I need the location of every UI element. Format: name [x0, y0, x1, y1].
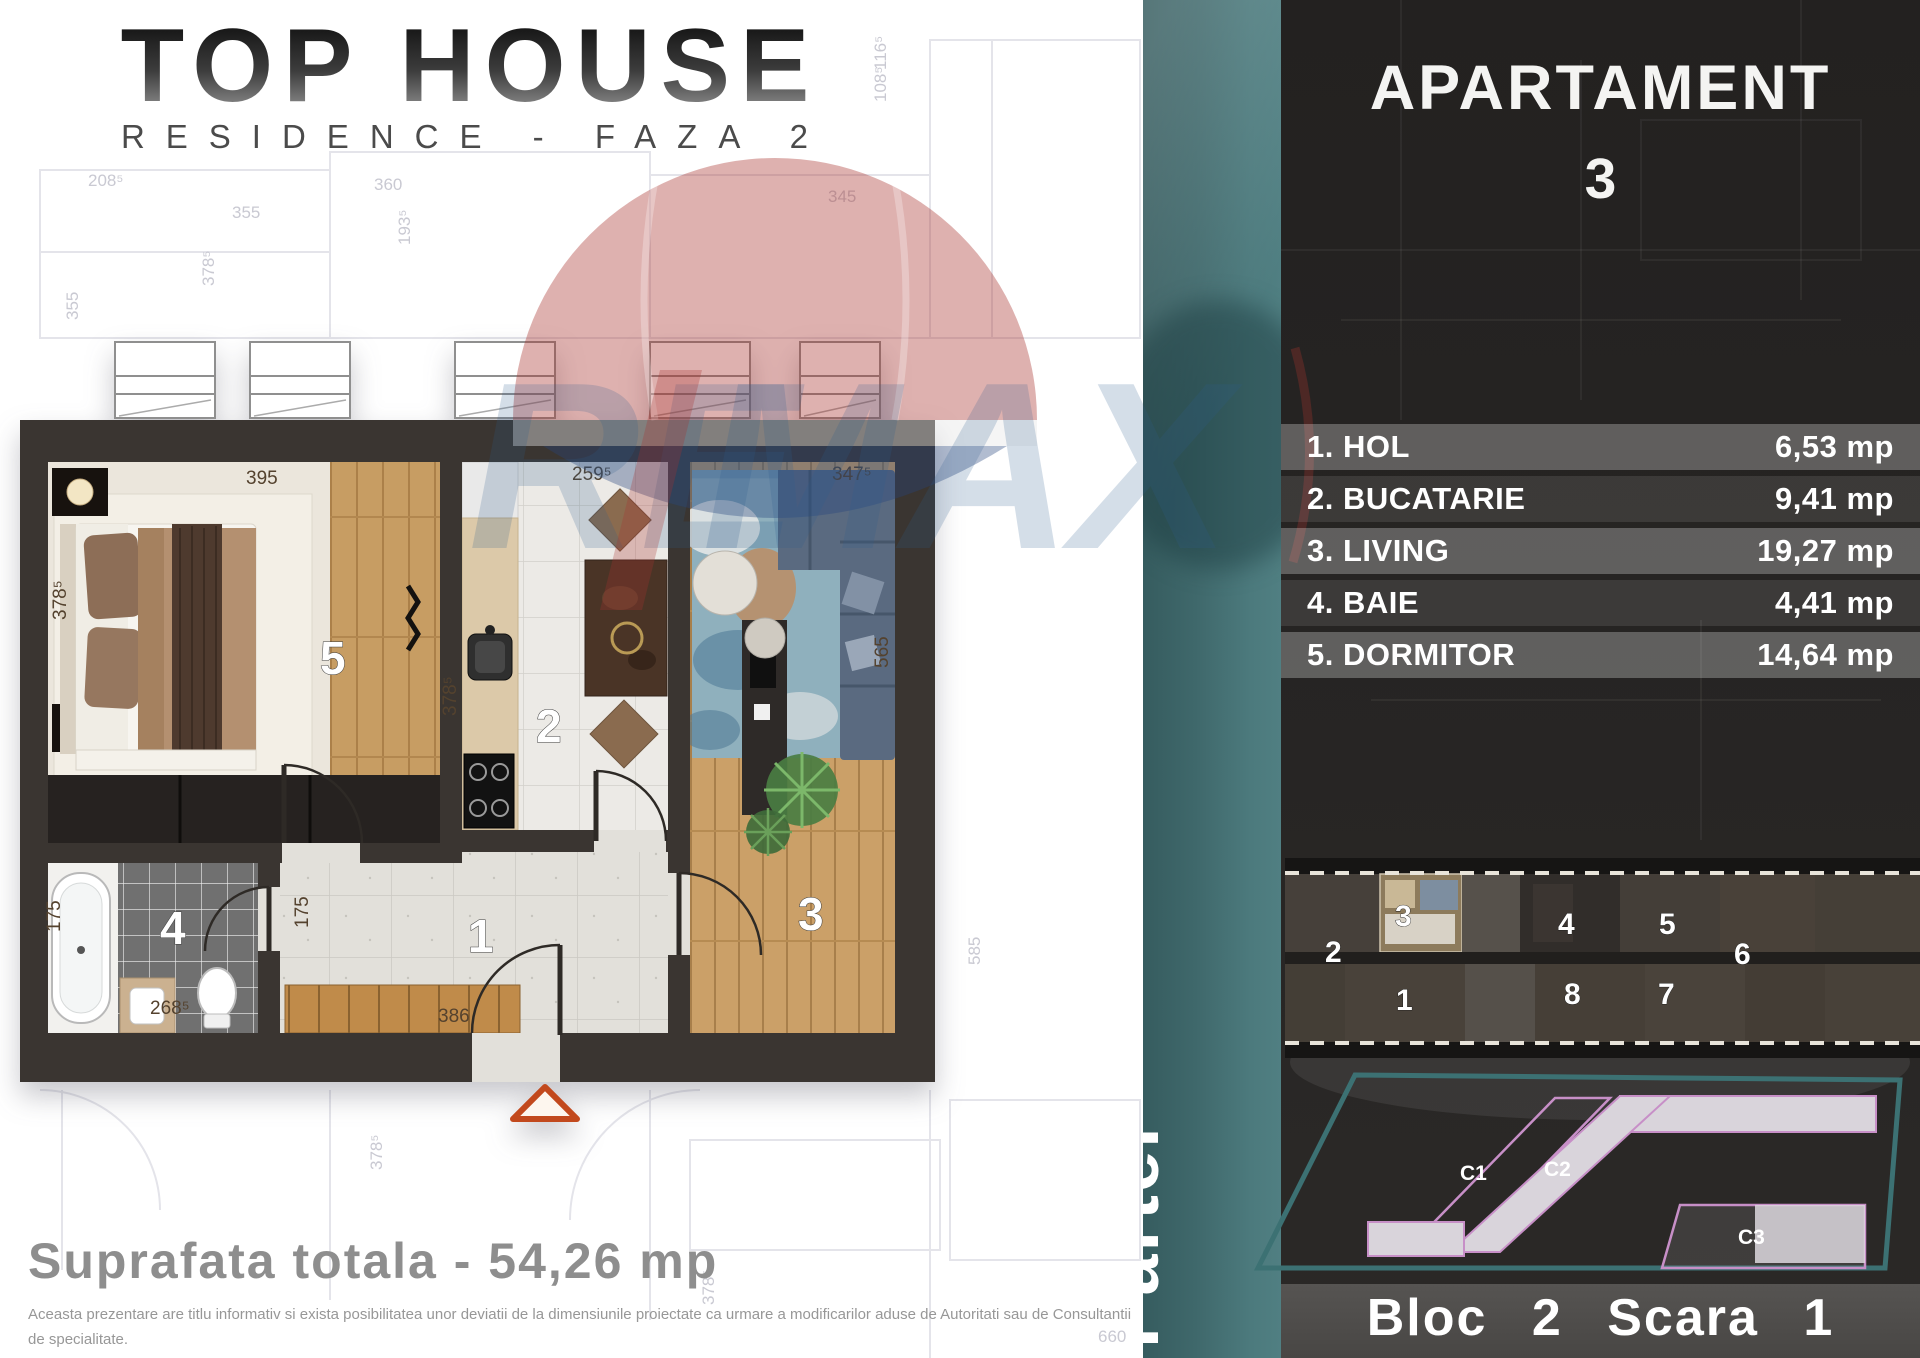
overview-unit-1: 1 [1396, 984, 1413, 1017]
overview-unit-5: 5 [1659, 908, 1676, 941]
dim-label: 268⁵ [150, 998, 190, 1019]
room-row-living: 3. LIVING 19,27 mp [1281, 528, 1920, 574]
dim-label: 175 [44, 900, 65, 932]
coffee-table [693, 551, 757, 615]
stove [464, 754, 514, 828]
dim-label: 175 [292, 896, 313, 928]
room-name: 5. DORMITOR [1307, 637, 1515, 673]
logo: TOP HOUSE RESIDENCE - FAZA 2 [70, 14, 870, 156]
backdrop-dim: 360 [374, 175, 402, 194]
disclaimer: Aceasta prezentare are titlu informativ … [28, 1303, 1140, 1358]
entrance-marker-icon [513, 1087, 577, 1119]
total-area-label: Suprafata totala - 54,26 mp [28, 1232, 718, 1290]
room-area: 14,64 mp [1757, 637, 1894, 673]
room-area: 9,41 mp [1775, 481, 1894, 517]
room-name: 3. LIVING [1307, 533, 1449, 569]
backdrop-dim: 378⁵ [199, 251, 218, 286]
room-number-kitchen: 2 [536, 700, 562, 752]
block-stair-label: Bloc 2 Scara 1 [1281, 1288, 1920, 1348]
room-number-living: 3 [798, 888, 824, 940]
room-name: 2. BUCATARIE [1307, 481, 1525, 517]
room-number-bedroom: 5 [320, 632, 346, 684]
room-row-hol: 1. HOL 6,53 mp [1281, 424, 1920, 470]
dim-label: 386 [438, 1006, 470, 1027]
overview-unit-4: 4 [1558, 908, 1575, 941]
logo-title: TOP HOUSE [70, 14, 870, 118]
room-row-dormitor: 5. DORMITOR 14,64 mp [1281, 632, 1920, 678]
toilet [198, 968, 236, 1028]
room-number-bath: 4 [160, 902, 186, 954]
disclaimer-line1: Aceasta prezentare are titlu informativ … [28, 1303, 1140, 1353]
site-plan: C1 C2 C3 [1248, 1060, 1920, 1290]
room-name: 1. HOL [1307, 429, 1410, 465]
overview-unit-3: 3 [1395, 900, 1412, 933]
room-number-hall: 1 [468, 910, 494, 962]
building-c3-label: C3 [1738, 1226, 1765, 1249]
building-c2-label: C2 [1544, 1158, 1571, 1181]
room-area: 6,53 mp [1775, 429, 1894, 465]
floor-plan: 395 259⁵ 347⁵ 378⁵ 378⁵ 175 175 268⁵ 386… [20, 338, 935, 1138]
window [115, 342, 880, 418]
room-area-list: 1. HOL 6,53 mp 2. BUCATARIE 9,41 mp 3. L… [1281, 424, 1920, 684]
overview-unit-6: 6 [1734, 938, 1751, 971]
apartment-title: APARTAMENT [1281, 52, 1920, 124]
overview-units [1285, 873, 1920, 1043]
floor-level-label: Parter [1143, 1116, 1175, 1348]
room-row-bucatarie: 2. BUCATARIE 9,41 mp [1281, 476, 1920, 522]
hall-sideboard [285, 985, 520, 1033]
backdrop-dim: 208⁵ [88, 171, 123, 190]
room-name: 4. BAIE [1307, 585, 1419, 621]
room-area: 4,41 mp [1775, 585, 1894, 621]
dim-label: 378⁵ [50, 580, 71, 620]
overview-unit-8: 8 [1564, 978, 1581, 1011]
backdrop-dim: 355 [63, 292, 82, 320]
fridge [462, 462, 518, 518]
backdrop-dim: 585 [965, 937, 984, 965]
dim-label: 259⁵ [572, 464, 612, 485]
room-area: 19,27 mp [1757, 533, 1894, 569]
backdrop-dim: 108⁵ [871, 67, 890, 102]
wardrobe [48, 775, 440, 843]
floor-overview: 2 3 4 5 6 1 8 7 [1285, 858, 1920, 1058]
disclaimer-line2: Echipamentele si mobilierul care apar in… [28, 1353, 1140, 1358]
backdrop-dim: 345 [828, 187, 856, 206]
dim-label: 378⁵ [440, 676, 461, 716]
dim-label: 395 [246, 468, 278, 489]
backdrop-dim: 193⁵ [395, 210, 414, 245]
dim-label: 347⁵ [832, 464, 872, 485]
room-row-baie: 4. BAIE 4,41 mp [1281, 580, 1920, 626]
poster: 208⁵ 355 360 345 193⁵ 378⁵ 355 116⁵ 108⁵… [0, 0, 1920, 1358]
backdrop-dim: 116⁵ [871, 36, 890, 70]
strip-balloon-shadow [1143, 300, 1281, 570]
logo-subtitle: RESIDENCE - FAZA 2 [70, 118, 870, 156]
building-c1-label: C1 [1460, 1162, 1487, 1185]
apartment-number: 3 [1281, 146, 1920, 212]
side-table [745, 618, 785, 658]
overview-unit-7: 7 [1658, 978, 1675, 1011]
bed [60, 524, 256, 770]
dining-table [585, 560, 667, 696]
backdrop-dim: 378⁵ [367, 1135, 386, 1170]
bathtub [52, 873, 110, 1023]
overview-unit-2: 2 [1325, 936, 1342, 969]
dim-label: 565 [872, 636, 893, 668]
backdrop-dim: 355 [232, 203, 260, 222]
